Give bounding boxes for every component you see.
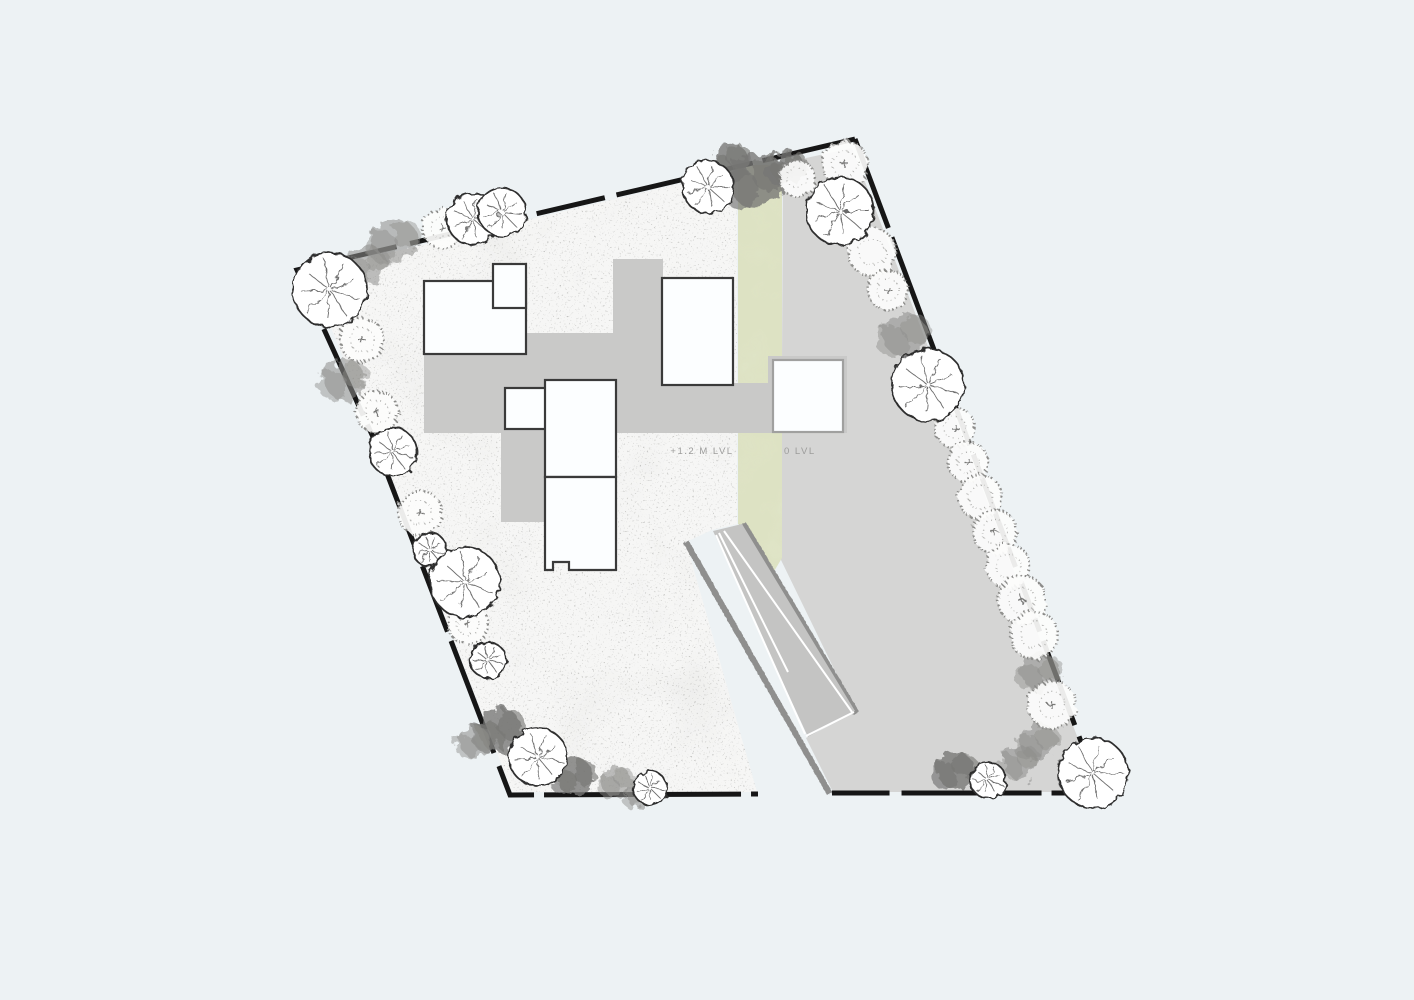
site-plan-drawing: +1.2 M LVL 0 LVL [0, 0, 1414, 1000]
stipple-tree [868, 270, 908, 310]
outline-tree-canopy [682, 161, 734, 213]
bush-blob [392, 221, 421, 250]
outline-tree [633, 771, 667, 805]
room [545, 477, 616, 570]
outline-tree-canopy [369, 428, 417, 476]
site-plan-canvas: +1.2 M LVL 0 LVL [0, 0, 1414, 1000]
bush-blob [902, 316, 931, 345]
room [505, 388, 546, 429]
outline-tree-canopy [478, 188, 526, 236]
road-level-label: 0 LVL [784, 446, 816, 457]
outline-tree-canopy [430, 547, 500, 617]
outline-tree [806, 177, 874, 245]
room [545, 380, 616, 477]
bush-blob [573, 761, 597, 785]
room [773, 360, 843, 432]
outline-tree [970, 762, 1006, 798]
stipple-tree-canopy [779, 160, 815, 196]
outline-tree-canopy [633, 771, 667, 805]
outline-tree-canopy [293, 253, 367, 327]
stipple-tree [356, 391, 398, 433]
room [662, 278, 733, 385]
stipple-tree [1010, 611, 1058, 659]
bush-blob [1018, 747, 1040, 769]
outline-tree [430, 547, 500, 617]
outline-tree [509, 728, 567, 786]
stipple-tree [779, 160, 815, 196]
stipple-tree [1028, 681, 1076, 729]
outline-tree [892, 349, 964, 421]
stipple-tree [398, 491, 442, 535]
stipple-tree [340, 318, 384, 362]
tree-spoke [1095, 773, 1124, 774]
outline-tree [682, 161, 734, 213]
garden-level-label: +1.2 M LVL [670, 446, 733, 457]
stipple-tree-canopy [1010, 611, 1058, 659]
outline-tree-canopy [470, 642, 506, 678]
outline-tree [478, 188, 526, 236]
bush-blob [343, 362, 369, 388]
outline-tree [293, 253, 367, 327]
terrace [501, 433, 546, 522]
outline-tree [470, 642, 506, 678]
bush-blob [1038, 656, 1062, 680]
outline-tree [369, 428, 417, 476]
outline-tree-canopy [892, 349, 964, 421]
outline-tree [1058, 738, 1128, 808]
bush-blob [473, 729, 493, 749]
bush-blob [1036, 726, 1060, 750]
room [493, 264, 526, 308]
